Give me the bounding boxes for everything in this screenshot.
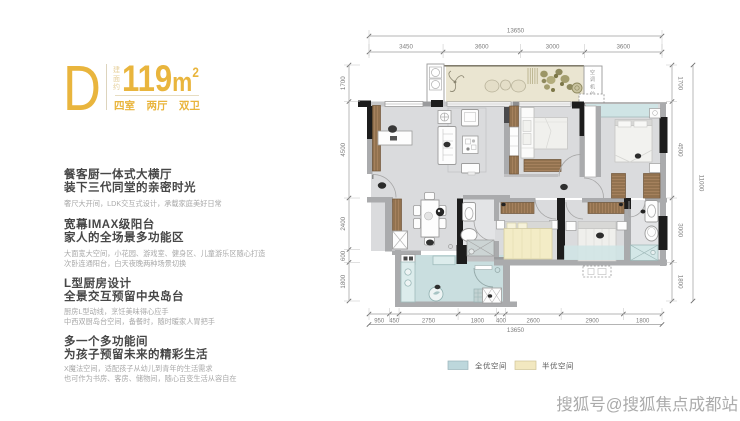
svg-text:400: 400: [496, 319, 507, 325]
svg-text:半优空间: 半优空间: [542, 361, 574, 371]
svg-text:2400: 2400: [340, 216, 347, 230]
svg-text:2900: 2900: [586, 319, 600, 325]
svg-text:3000: 3000: [546, 44, 560, 51]
svg-text:600: 600: [340, 250, 347, 261]
svg-text:1800: 1800: [636, 319, 650, 325]
svg-text:2750: 2750: [422, 319, 436, 325]
svg-text:全优空间: 全优空间: [475, 361, 507, 371]
svg-text:1700: 1700: [340, 76, 347, 90]
svg-text:1800: 1800: [471, 319, 485, 325]
svg-text:1800: 1800: [340, 274, 347, 288]
svg-text:13650: 13650: [507, 28, 525, 35]
svg-text:机: 机: [590, 82, 596, 90]
svg-text:调: 调: [590, 75, 595, 83]
svg-text:空: 空: [590, 68, 595, 76]
svg-text:950: 950: [374, 319, 385, 325]
svg-text:2600: 2600: [527, 319, 541, 325]
svg-text:4500: 4500: [340, 142, 347, 156]
svg-text:3450: 3450: [399, 44, 413, 51]
svg-text:11000: 11000: [698, 175, 705, 192]
svg-text:4500: 4500: [677, 143, 684, 157]
svg-text:3000: 3000: [677, 223, 684, 237]
svg-text:450: 450: [389, 319, 400, 325]
svg-text:3600: 3600: [475, 44, 489, 51]
svg-text:3600: 3600: [616, 44, 630, 51]
svg-text:1800: 1800: [677, 275, 684, 289]
svg-text:13650: 13650: [507, 327, 525, 334]
svg-text:1700: 1700: [677, 76, 684, 90]
